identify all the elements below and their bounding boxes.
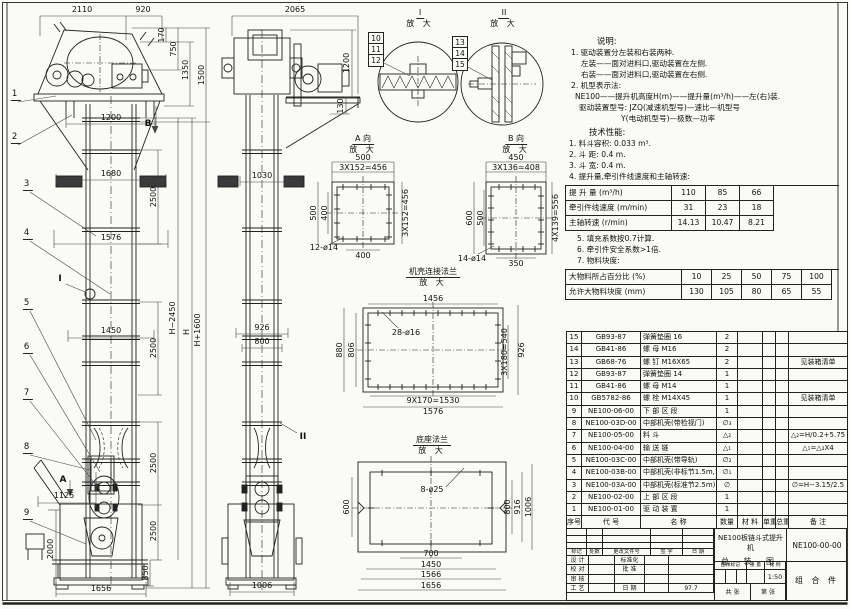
- dim-va-456r: 3X152=456: [402, 189, 410, 237]
- dim-fc-1530: 9X170=1530: [407, 397, 460, 405]
- role-design-sign: [589, 556, 615, 565]
- bom-total-weight: [776, 393, 789, 405]
- dim-fb-1656: 1656: [421, 582, 441, 590]
- stamp-box: [715, 570, 726, 584]
- view-a-title: A 向 放 大: [349, 134, 377, 155]
- dim-fb-holes: 8-ø25: [420, 486, 443, 494]
- bom-qty: 1: [717, 492, 738, 504]
- bom-remark: 见装箱清单: [789, 357, 848, 369]
- bom-material: [738, 504, 763, 516]
- dim-fc-1456: 1456: [423, 295, 443, 303]
- casing-flange-title: 机壳连接法兰 放 大: [406, 267, 460, 288]
- base-flange-sub: 放 大: [413, 446, 451, 456]
- bom-no: 6: [567, 443, 582, 455]
- dim-vb-556r: 4X139=556: [552, 194, 560, 242]
- casing-flange-dimensions: [344, 304, 518, 407]
- detail-ii-marker: II: [300, 432, 307, 442]
- lump-row-label: 大物料所占百分比 (%): [566, 270, 682, 285]
- bom-no: 10: [567, 393, 582, 405]
- bom-qty: 1: [717, 381, 738, 393]
- leader-4: 4: [23, 229, 33, 240]
- dim-fb-1006: 1006: [525, 497, 533, 517]
- bom-remark: [789, 344, 848, 356]
- rev-cell: [603, 543, 651, 550]
- bom-no: 4: [567, 467, 582, 479]
- dim-vb-408t: 3X136=408: [492, 164, 540, 172]
- leader-1: 1: [11, 90, 21, 101]
- rev-cell: [603, 529, 651, 536]
- dim-front-750: 750: [170, 41, 178, 56]
- bom-total-weight: [776, 467, 789, 479]
- title-block-right: NE100-00-00 组 合 件: [787, 529, 847, 600]
- bom-material: [738, 393, 763, 405]
- rev-cell: [587, 543, 603, 550]
- bom-no: 2: [567, 492, 582, 504]
- bom-row: 2 NE100-02-00 上 部 区 段 1: [567, 492, 848, 504]
- dim-front-1200: 1200: [101, 114, 121, 122]
- bom-material: [738, 443, 763, 455]
- dim-side-130: 130: [337, 98, 345, 113]
- bom-qty: ∅: [717, 480, 738, 492]
- drawing-title-area: NE100板链斗式提升机 总 装 图: [715, 529, 786, 562]
- role-review-sign: [589, 575, 615, 584]
- bom-no: 9: [567, 406, 582, 418]
- view-b-marker: B: [145, 119, 152, 129]
- bom-row: 8 NE100-03D-00 中部机壳(带检视门) ∅₃: [567, 418, 848, 430]
- performance-line: 7. 物料块度:: [577, 255, 839, 266]
- dim-front-850: 850: [142, 565, 150, 580]
- view-b-title: B 向 放 大: [502, 134, 530, 155]
- stamp-weight-label: 重 量: [747, 562, 765, 570]
- role-process-sign: [589, 584, 615, 593]
- bom-qty: 2: [717, 332, 738, 344]
- lump-row-label: 允许大物料块度 (mm): [566, 285, 682, 300]
- bom-no: 12: [567, 369, 582, 381]
- role-standard: 标准化: [615, 556, 645, 565]
- bom-no: 15: [567, 332, 582, 344]
- dim-front-1500: 1500: [198, 65, 206, 85]
- bom-qty: 2: [717, 344, 738, 356]
- note-line: Y(电动机型号)—极数—功率: [621, 113, 839, 124]
- notes-lines: 1. 驱动装置分左装和右装两种.左装——面对进料口,驱动装置在左侧.右装——面对…: [563, 47, 839, 124]
- dim-side-2065: 2065: [285, 6, 305, 14]
- bom-row: 7 NE100-05-00 料 斗 △₂ △₂=H/0.2+5.75: [567, 430, 848, 442]
- bom-name: 螺 钉 M16X65: [641, 357, 717, 369]
- bom-remark: [789, 504, 848, 516]
- speed-table: 提 升 量 (m³/h) 110 85 66 牵引件线速度 (m/min) 31…: [565, 185, 839, 231]
- performance-line: 6. 牵引件安全系数>1倍.: [577, 244, 839, 255]
- dim-front-2500b: 2500: [150, 338, 158, 358]
- dim-front-1576: 1576: [101, 234, 121, 242]
- performance-lines-b: 5. 填充系数按0.7计算.6. 牵引件安全系数>1倍.7. 物料块度:: [563, 233, 839, 266]
- lump-value-2: 25: [712, 270, 742, 285]
- sheets-total: 共 张: [715, 584, 751, 601]
- role-blank: [669, 575, 714, 584]
- casing-flange-linework: [357, 302, 509, 398]
- dim-va-500t: 500: [355, 154, 370, 162]
- bom-unit-weight: [763, 332, 776, 344]
- speed-row-label: 提 升 量 (m³/h): [566, 186, 672, 201]
- bom-unit-weight: [763, 369, 776, 381]
- bom-name: 上 部 区 段: [641, 492, 717, 504]
- bom-unit-weight: [763, 357, 776, 369]
- dim-vb-500l: 500: [477, 210, 485, 225]
- speed-table-row: 主轴转速 (r/min) 14.13 10.47 8.21: [566, 216, 839, 231]
- role-date-blank: [645, 584, 669, 593]
- rev-cell: [567, 536, 587, 543]
- bom-remark: [789, 381, 848, 393]
- bom-no: 7: [567, 430, 582, 442]
- bom-unit-weight: [763, 492, 776, 504]
- base-flange-title-text: 底座法兰: [413, 435, 451, 446]
- detail-i-title: I 放 大: [406, 8, 434, 29]
- bom-code: NE100-03B-00: [582, 467, 641, 479]
- role-review: 审 核: [567, 575, 589, 584]
- performance-line: 5. 填充系数按0.7计算.: [577, 233, 839, 244]
- bom-qty: △₁: [717, 443, 738, 455]
- bom-material: [738, 332, 763, 344]
- role-check-sign: [589, 565, 615, 574]
- bom-name: 下 部 区 段: [641, 406, 717, 418]
- roles-grid: 设 计 标准化 校 对 批 准 审 核 工 艺: [567, 556, 714, 593]
- rev-header-sign: 签 字: [651, 549, 683, 556]
- bom-total-weight: [776, 430, 789, 442]
- view-a-marker: A: [60, 475, 67, 485]
- dim-front-h1600: H+1600: [194, 313, 202, 346]
- leader-3: 3: [23, 180, 33, 191]
- bom-remark: [789, 369, 848, 381]
- performance-line: 4. 提升量,牵引件线速度和主轴转速:: [569, 171, 839, 182]
- dim-vb-450t: 450: [508, 154, 523, 162]
- leader-2: 2: [11, 133, 21, 144]
- bom-total-weight: [776, 381, 789, 393]
- role-process: 工 艺: [567, 584, 589, 593]
- base-flange-dimensions: [352, 464, 532, 590]
- bom-name: 中部机壳(非标节1.5m,1m): [641, 467, 717, 479]
- detail-ii-title: II 放 大: [490, 8, 518, 29]
- dim-side-926: 926: [254, 324, 269, 332]
- performance-lines-a: 1. 料斗容积: 0.033 m³.2. 斗 距: 0.4 m.3. 斗 宽: …: [563, 138, 839, 182]
- dim-fc-holes: 28-ø16: [392, 329, 420, 337]
- bom-unit-weight: [763, 430, 776, 442]
- dim-front-920: 920: [135, 6, 150, 14]
- bom-material: [738, 430, 763, 442]
- lump-value-5: 100: [802, 270, 832, 285]
- stamp-values: 1:50: [715, 570, 786, 584]
- bom-total-weight: [776, 443, 789, 455]
- bom-name: 中部机壳(带检视门): [641, 418, 717, 430]
- bom-material: [738, 381, 763, 393]
- bom-remark: ∅=H−3.15/2.5: [789, 480, 848, 492]
- bom-qty: 1: [717, 393, 738, 405]
- leader-7: 7: [23, 389, 33, 400]
- rev-cell: [651, 543, 683, 550]
- dim-fb-600: 600: [343, 499, 351, 514]
- dim-va-400b: 400: [355, 252, 370, 260]
- dim-vb-350b: 350: [508, 260, 523, 268]
- speed-value-2: 10.47: [706, 216, 740, 231]
- speed-table-row: 牵引件线速度 (m/min) 31 23 18: [566, 201, 839, 216]
- detail-i-sub: 放 大: [406, 19, 434, 29]
- notes-heading: 说明:: [597, 36, 839, 47]
- dim-fb-1450: 1450: [421, 561, 441, 569]
- bom-name: 螺 栓 M14X45: [641, 393, 717, 405]
- dim-fb-800: 800: [504, 499, 512, 514]
- bom-code: NE100-01-00: [582, 504, 641, 516]
- speed-value-2: 85: [706, 186, 740, 201]
- bom-code: NE100-03C-00: [582, 455, 641, 467]
- rev-header-mark: 标记: [567, 549, 587, 556]
- bom-remark: [789, 406, 848, 418]
- dim-fc-880: 880: [336, 342, 344, 357]
- detail-i-marker: I: [58, 274, 61, 284]
- dim-front-2500a: 2500: [150, 187, 158, 207]
- view-a-title-text: A 向: [352, 134, 374, 145]
- dim-front-1450: 1450: [101, 327, 121, 335]
- detail-i-label: I: [416, 8, 424, 19]
- bom-material: [738, 455, 763, 467]
- rev-cell: [683, 529, 714, 536]
- bom-code: GB93-87: [582, 369, 641, 381]
- lump-value-1: 130: [682, 285, 712, 300]
- bom-remark: [789, 455, 848, 467]
- dim-front-h: H: [183, 329, 191, 335]
- rev-cell: [587, 536, 603, 543]
- dim-front-1350: 1350: [182, 60, 190, 80]
- dim-front-2110: 2110: [72, 6, 92, 14]
- base-flange-linework: [352, 456, 512, 558]
- bom-material: [738, 357, 763, 369]
- bom-row: 3 NE100-03A-00 中部机壳(标准节2.5m) ∅ ∅=H−3.15/…: [567, 480, 848, 492]
- weight-value: [747, 570, 765, 584]
- bom-remark: △₁=△₂X4: [789, 443, 848, 455]
- drawing-sheet: 2110 920 170 750 1350 1500 1200 1680 250…: [0, 0, 850, 609]
- bom-code: GB5782-86: [582, 393, 641, 405]
- rev-cell: [651, 536, 683, 543]
- bom-row: 5 NE100-03C-00 中部机壳(带导轨) ∅₂: [567, 455, 848, 467]
- bom-remark: [789, 332, 848, 344]
- bom-qty: ∅₂: [717, 455, 738, 467]
- bom-total-weight: [776, 418, 789, 430]
- base-flange-title: 底座法兰 放 大: [413, 435, 451, 456]
- dim-va-400l: 400: [321, 205, 329, 220]
- dim-side-800: 800: [254, 338, 269, 346]
- speed-value-1: 31: [672, 201, 706, 216]
- bom-unit-weight: [763, 393, 776, 405]
- rev-cell: [651, 529, 683, 536]
- dim-fb-1566: 1566: [421, 571, 441, 579]
- bom-row: 1 NE100-01-00 驱 动 装 置 1: [567, 504, 848, 516]
- bom-qty: 2: [717, 357, 738, 369]
- dim-side-1006: 1006: [252, 582, 272, 590]
- speed-value-3: 18: [740, 201, 774, 216]
- dim-fb-700: 700: [423, 550, 438, 558]
- note-line: NE100——提升机高度H(m)——提升量(m³/h)——左(右)装.: [575, 91, 839, 102]
- bom-code: NE100-03D-00: [582, 418, 641, 430]
- bom-no: 13: [567, 357, 582, 369]
- leader-12: 12: [368, 54, 384, 67]
- bom-name: 驱 动 装 置: [641, 504, 717, 516]
- bom-material: [738, 369, 763, 381]
- dim-front-1125: 1125: [54, 492, 74, 500]
- bom-name: 料 斗: [641, 430, 717, 442]
- rev-cell: [683, 543, 714, 550]
- stamp-scale-label: 比 例: [765, 562, 786, 570]
- dim-va-holes: 12-ø14: [310, 244, 338, 252]
- bom-qty: 1: [717, 369, 738, 381]
- drawing-date: 97.7: [669, 584, 714, 593]
- dim-side-1030: 1030: [252, 172, 272, 180]
- lump-table-row: 允许大物料块度 (mm) 130 105 80 65 55: [566, 285, 839, 300]
- speed-value-1: 14.13: [672, 216, 706, 231]
- bom-name: 螺 母 M16: [641, 344, 717, 356]
- note-line: 1. 驱动装置分左装和右装两种.: [571, 47, 839, 58]
- lump-value-2: 105: [712, 285, 742, 300]
- bom-name: 弹簧垫圈 14: [641, 369, 717, 381]
- dim-va-456t: 3X152=456: [339, 164, 387, 172]
- lump-value-5: 55: [802, 285, 832, 300]
- bom-material: [738, 344, 763, 356]
- dim-fc-1576: 1576: [423, 408, 443, 416]
- bom-qty: ∅₁: [717, 467, 738, 479]
- bom-table: 15 GB93-87 弹簧垫圈 16 2 14 GB41-86 螺 母 M16 …: [566, 331, 848, 529]
- role-date-label: 日 期: [615, 584, 645, 593]
- bom-code: NE100-05-00: [582, 430, 641, 442]
- performance-heading: 技术性能:: [589, 127, 839, 138]
- detail-ii-sub: 放 大: [490, 19, 518, 29]
- dim-fc-926: 926: [518, 342, 526, 357]
- speed-value-2: 23: [706, 201, 740, 216]
- leader-8: 8: [23, 443, 33, 454]
- bom-unit-weight: [763, 381, 776, 393]
- bom-total-weight: [776, 357, 789, 369]
- bom-code: GB41-86: [582, 381, 641, 393]
- title-block: 标记 处数 更改文件号 签 字 日 期 设 计 标准化 校 对 批 准: [566, 528, 847, 601]
- sheet-count-row: 共 张 第 张: [715, 584, 786, 601]
- bom-unit-weight: [763, 443, 776, 455]
- bom-material: [738, 492, 763, 504]
- rev-cell: [567, 529, 587, 536]
- bom-unit-weight: [763, 418, 776, 430]
- bom-row: 13 GB68-76 螺 钉 M16X65 2 见装箱清单: [567, 357, 848, 369]
- bom-unit-weight: [763, 504, 776, 516]
- stamp-box: [737, 570, 747, 584]
- performance-line: 1. 料斗容积: 0.033 m³.: [569, 138, 839, 149]
- bom-total-weight: [776, 369, 789, 381]
- note-line: 2. 机型表示法:: [571, 80, 839, 91]
- bom-total-weight: [776, 455, 789, 467]
- speed-table-row: 提 升 量 (m³/h) 110 85 66: [566, 186, 839, 201]
- lump-value-4: 65: [772, 285, 802, 300]
- rev-cell: [567, 543, 587, 550]
- bom-remark: 见装箱清单: [789, 393, 848, 405]
- bom-code: NE100-03A-00: [582, 480, 641, 492]
- bom-total-weight: [776, 344, 789, 356]
- lump-value-4: 75: [772, 270, 802, 285]
- bom-name: 弹簧垫圈 16: [641, 332, 717, 344]
- bom-no: 5: [567, 455, 582, 467]
- bom-material: [738, 418, 763, 430]
- rev-cell: [587, 529, 603, 536]
- note-line: 右装——面对进料口,驱动装置在右侧.: [581, 69, 839, 80]
- bom-remark: [789, 467, 848, 479]
- bom-row: 4 NE100-03B-00 中部机壳(非标节1.5m,1m) ∅₁: [567, 467, 848, 479]
- role-approve: 批 准: [615, 565, 645, 574]
- view-a-linework: [326, 176, 400, 250]
- bom-name: 中部机壳(带导轨): [641, 455, 717, 467]
- lump-value-3: 80: [742, 285, 772, 300]
- role-standard-sign: [645, 556, 669, 565]
- bom-remark: [789, 492, 848, 504]
- dim-side-1200: 1200: [343, 53, 351, 73]
- bom-remark: [789, 418, 848, 430]
- detail-i-linework: [378, 42, 458, 122]
- bom-total-weight: [776, 480, 789, 492]
- bom-unit-weight: [763, 344, 776, 356]
- detail-ii-label: II: [499, 8, 510, 19]
- bom-row: 12 GB93-87 弹簧垫圈 14 1: [567, 369, 848, 381]
- rev-cell: [603, 536, 651, 543]
- speed-value-3: 8.21: [740, 216, 774, 231]
- dim-va-500l: 500: [310, 205, 318, 220]
- bom-row: 11 GB41-86 螺 母 M14 1: [567, 381, 848, 393]
- part-type: 组 合 件: [787, 562, 847, 601]
- speed-row-label: 主轴转速 (r/min): [566, 216, 672, 231]
- leader-9: 9: [23, 509, 33, 520]
- bom-name: 螺 母 M14: [641, 381, 717, 393]
- bom-code: NE100-04-00: [582, 443, 641, 455]
- role-blank: [669, 565, 714, 574]
- bom-unit-weight: [763, 455, 776, 467]
- stamp-labels: 图样标记 重 量 比 例: [715, 562, 786, 570]
- bom-row: 15 GB93-87 弹簧垫圈 16 2: [567, 332, 848, 344]
- performance-line: 3. 斗 宽: 0.4 m.: [569, 160, 839, 171]
- performance-line: 2. 斗 距: 0.4 m.: [569, 149, 839, 160]
- bom-name: 输 送 链: [641, 443, 717, 455]
- role-design: 设 计: [567, 556, 589, 565]
- dim-front-2000: 2000: [47, 539, 55, 559]
- lump-value-3: 50: [742, 270, 772, 285]
- title-block-center: NE100板链斗式提升机 总 装 图 图样标记 重 量 比 例 1:50 共 张…: [715, 529, 787, 600]
- role-blank: [645, 575, 669, 584]
- bom-unit-weight: [763, 480, 776, 492]
- speed-value-1: 110: [672, 186, 706, 201]
- drawing-title: NE100板链斗式提升机: [715, 533, 786, 553]
- note-line: 左装——面对进料口,驱动装置在左侧.: [581, 58, 839, 69]
- detail-ii-linework: [461, 43, 543, 125]
- drawing-number: NE100-00-00: [787, 529, 847, 562]
- bom-unit-weight: [763, 467, 776, 479]
- dim-front-2500d: 2500: [150, 521, 158, 541]
- dim-front-170: 170: [158, 27, 166, 42]
- title-block-revision-area: 标记 处数 更改文件号 签 字 日 期 设 计 标准化 校 对 批 准: [567, 529, 715, 600]
- bom-material: [738, 480, 763, 492]
- leader-5: 5: [23, 299, 33, 310]
- bom-qty: ∅₃: [717, 418, 738, 430]
- leader-6: 6: [23, 343, 33, 354]
- revision-grid: 标记 处数 更改文件号 签 字 日 期: [567, 529, 714, 556]
- view-b-title-text: B 向: [505, 134, 527, 145]
- bom-no: 11: [567, 381, 582, 393]
- speed-value-3: 66: [740, 186, 774, 201]
- rev-cell: [683, 536, 714, 543]
- bom-qty: △₂: [717, 430, 738, 442]
- bom-qty: 1: [717, 406, 738, 418]
- stamp-mark-label: 图样标记: [715, 562, 747, 570]
- bom-code: GB41-86: [582, 344, 641, 356]
- lump-value-1: 10: [682, 270, 712, 285]
- bom-total-weight: [776, 492, 789, 504]
